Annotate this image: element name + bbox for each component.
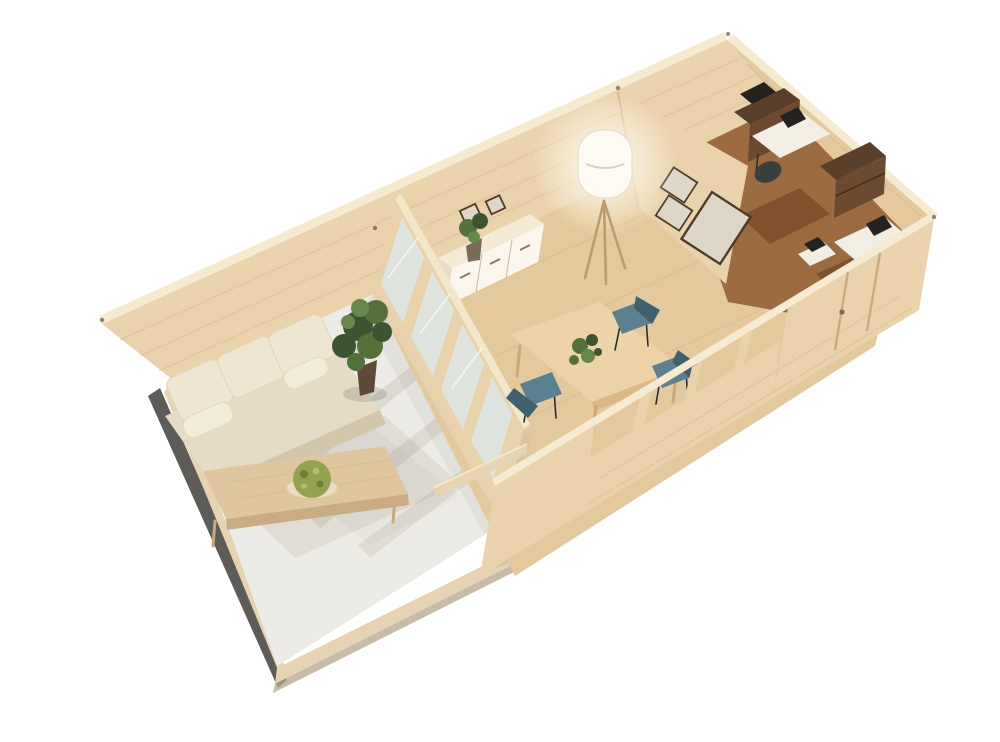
north-corner-cap [726,32,730,36]
coffee-leg-1 [213,521,215,546]
gable-peak-cap [616,86,620,90]
side-door-handle [839,309,844,314]
west-corner-cap [100,318,104,322]
render-canvas [40,16,1000,726]
east-corner-cap [932,215,936,219]
partition-post-cap [373,226,377,230]
cabin-cutaway-render [40,16,1000,726]
moss-bowl [293,460,331,498]
